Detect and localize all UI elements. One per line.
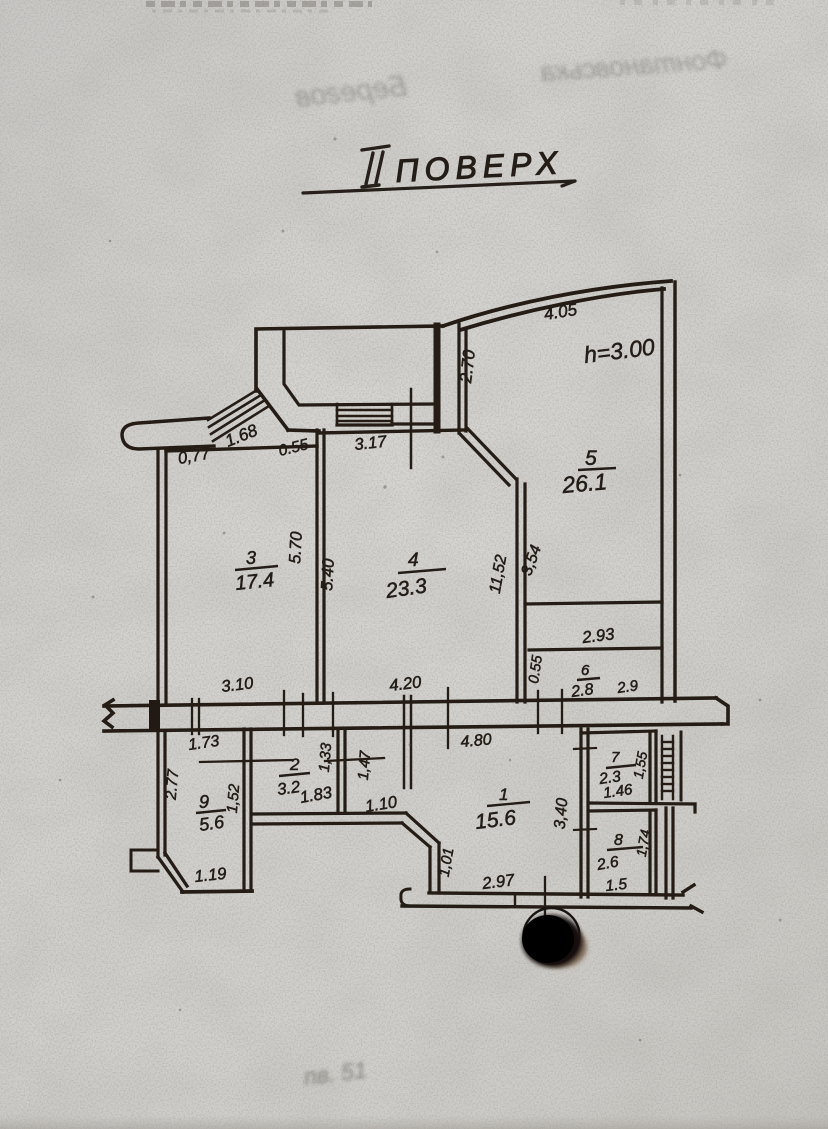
svg-text:1.19: 1.19 <box>194 865 228 886</box>
svg-text:1,47: 1,47 <box>355 750 375 781</box>
svg-text:1: 1 <box>499 785 508 804</box>
svg-text:2.9: 2.9 <box>615 677 640 697</box>
svg-text:1.5: 1.5 <box>605 876 629 895</box>
svg-text:2: 2 <box>289 755 300 774</box>
svg-text:2.8: 2.8 <box>569 681 594 701</box>
svg-text:4.80: 4.80 <box>460 731 493 751</box>
svg-text:3: 3 <box>246 548 256 568</box>
svg-text:1,52: 1,52 <box>224 783 244 814</box>
svg-text:8: 8 <box>614 832 623 849</box>
svg-text:3,40: 3,40 <box>552 797 572 830</box>
svg-text:1,33: 1,33 <box>316 742 336 773</box>
svg-text:5: 5 <box>585 447 597 470</box>
svg-text:5.6: 5.6 <box>198 812 227 835</box>
svg-text:4: 4 <box>408 550 419 571</box>
svg-text:3.17: 3.17 <box>354 433 389 454</box>
svg-text:5.40: 5.40 <box>318 557 338 591</box>
svg-text:6: 6 <box>581 662 590 679</box>
svg-text:7: 7 <box>611 749 620 766</box>
svg-text:26.1: 26.1 <box>560 468 608 498</box>
svg-text:17.4: 17.4 <box>234 569 275 595</box>
svg-text:9: 9 <box>199 792 209 812</box>
svg-text:2.77: 2.77 <box>163 767 183 801</box>
svg-text:5.70: 5.70 <box>286 530 306 564</box>
